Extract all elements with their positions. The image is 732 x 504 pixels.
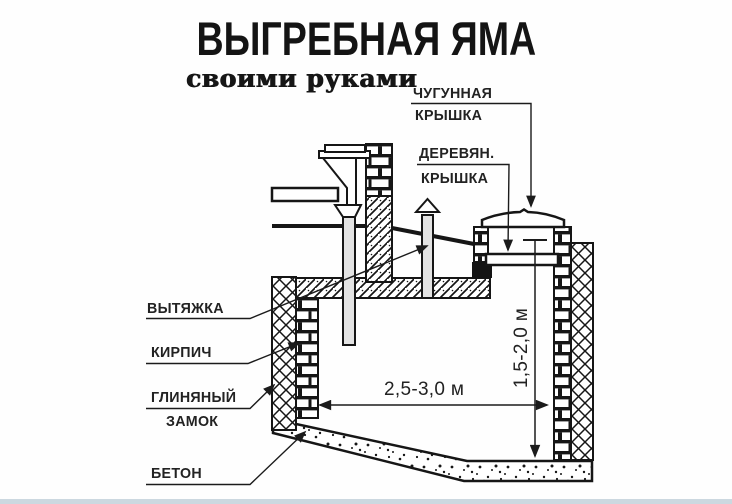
toilet-lid [325, 145, 365, 152]
concrete-floor [273, 419, 592, 481]
label-clay-lock-line2: ЗАМОК [166, 413, 218, 430]
right-wall-clay-lock [571, 243, 593, 460]
cast-iron-cover-shape [482, 210, 564, 228]
page-title: ВЫГРЕБНАЯ ЯМА [0, 11, 732, 66]
page-subtitle: своими руками [186, 64, 417, 93]
toilet-soil-pipe [343, 217, 355, 345]
label-clay-lock-line1: ГЛИНЯНЫЙ [151, 389, 236, 406]
toilet-connector [335, 205, 361, 217]
left-wall-clay-lock [272, 277, 296, 430]
label-cast-iron-cover-line2: КРЫШКА [415, 107, 482, 124]
label-wooden-cover-line2: КРЫШКА [421, 170, 488, 187]
left-wall-brick [296, 298, 318, 418]
label-vent: ВЫТЯЖКА [147, 300, 224, 317]
page-title-text: ВЫГРЕБНАЯ ЯМА [196, 11, 536, 66]
cesspool-diagram-page: ВЫГРЕБНАЯ ЯМА своими руками ЧУГУННАЯ КРЫ… [0, 0, 732, 504]
label-wooden-cover-line1: ДЕРЕВЯН. [419, 145, 494, 162]
image-bottom-border [0, 499, 732, 504]
vent-pipe [422, 215, 433, 298]
label-cast-iron-cover-line1: ЧУГУННАЯ [413, 85, 492, 102]
vent-cap [416, 199, 439, 212]
wooden-cover-shape [486, 254, 558, 265]
toilet-bench [272, 188, 338, 201]
label-concrete: БЕТОН [151, 465, 202, 482]
label-brick: КИРПИЧ [151, 344, 212, 361]
dimension-pit-width: 2,5-3,0 м [384, 379, 464, 401]
dimension-pit-depth: 1,5-2,0 м [511, 308, 533, 388]
